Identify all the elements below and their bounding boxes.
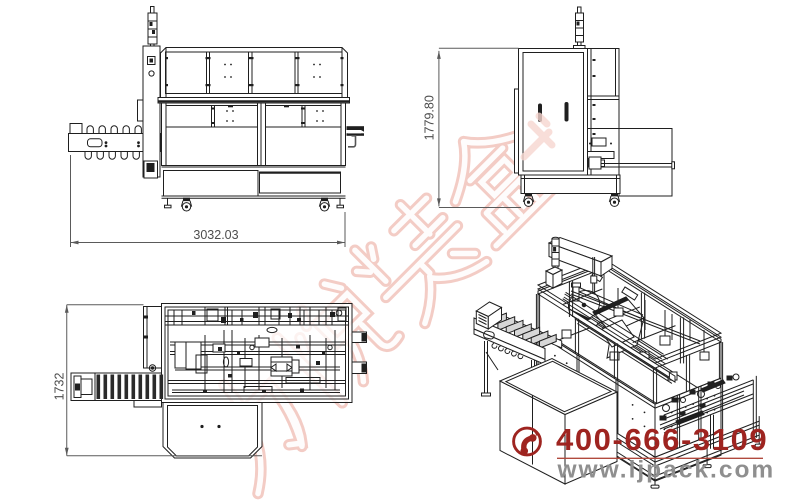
svg-text:3032.03: 3032.03 (193, 228, 238, 242)
svg-text:400-666-3109: 400-666-3109 (556, 422, 768, 457)
svg-text:1732: 1732 (53, 373, 67, 401)
svg-text:www.ljpack.com: www.ljpack.com (557, 457, 776, 484)
svg-text:1779.80: 1779.80 (423, 95, 437, 140)
